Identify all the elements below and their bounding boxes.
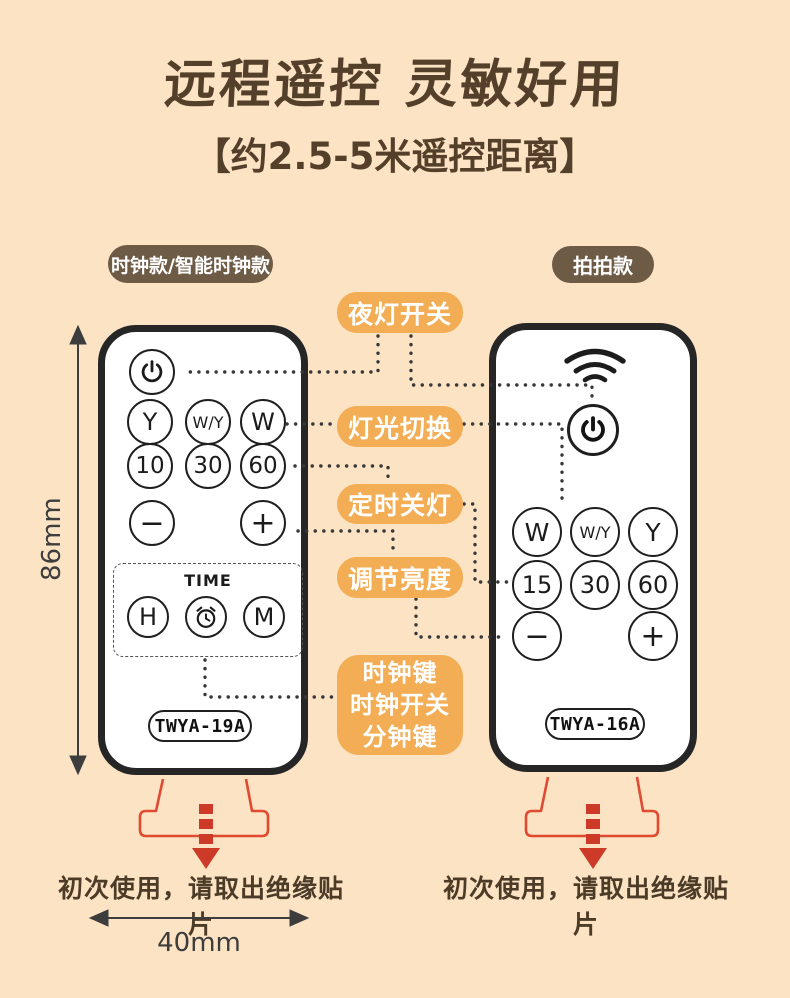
- alarm-button: [185, 596, 227, 638]
- callout-timer-off: 定时关灯: [337, 484, 463, 524]
- model-label-twya16a: TWYA-16A: [545, 708, 645, 740]
- callout-clock-key: 时钟键: [363, 657, 438, 689]
- model-badge-pat: 拍拍款: [552, 246, 654, 283]
- yellow-button: Y: [127, 399, 173, 445]
- product-infographic: 远程遥控 灵敏好用 【约2.5-5米遥控距离】 时钟款/智能时钟款 拍拍款: [0, 0, 790, 998]
- alarm-clock-icon: [193, 604, 219, 630]
- model-label-twya19a: TWYA-19A: [148, 710, 252, 742]
- power-button: [567, 404, 619, 456]
- white-button: W: [512, 507, 562, 557]
- callout-clock-keys: 时钟键 时钟开关 分钟键: [337, 655, 463, 755]
- pull-arrow-right: [579, 804, 607, 869]
- callout-adjust-brightness: 调节亮度: [337, 557, 463, 598]
- timer-60-button: 60: [628, 560, 678, 610]
- power-button: [129, 349, 175, 395]
- warm-yellow-button: W/Y: [185, 399, 231, 445]
- insulation-tab-left: [140, 779, 268, 836]
- time-section: TIME H M: [113, 563, 303, 657]
- dotted-line-brightness-left: [298, 531, 393, 555]
- yellow-button: Y: [628, 507, 678, 557]
- height-dimension-label: 86mm: [37, 501, 67, 581]
- callout-light-switching: 灯光切换: [337, 406, 463, 447]
- remote-pat-model: W W/Y Y 15 30 60 − + TWYA-16A: [489, 323, 697, 772]
- dim-minus-button: −: [129, 500, 175, 546]
- timer-30-button: 30: [570, 560, 620, 610]
- remote-clock-model: Y W/Y W 10 30 60 − + TIME H M TWYA-19A: [98, 325, 308, 775]
- callout-clock-switch: 时钟开关: [350, 689, 450, 721]
- signal-waves-icon: [563, 346, 627, 384]
- timer-60-button: 60: [240, 443, 286, 489]
- timer-10-button: 10: [127, 443, 173, 489]
- power-icon: [578, 415, 608, 445]
- dim-minus-button: −: [512, 611, 562, 661]
- dotted-line-timeroff-left: [295, 466, 388, 482]
- page-title: 远程遥控 灵敏好用: [0, 42, 790, 117]
- brighten-plus-button: +: [628, 611, 678, 661]
- power-icon: [139, 359, 165, 385]
- callout-minute-key: 分钟键: [363, 721, 438, 753]
- insulation-tab-right: [526, 777, 658, 836]
- page-subtitle: 【约2.5-5米遥控距离】: [0, 126, 790, 180]
- warm-yellow-button: W/Y: [570, 507, 620, 557]
- pull-arrow-left: [192, 804, 220, 869]
- width-dimension-label: 40mm: [139, 928, 259, 958]
- hour-button: H: [127, 596, 169, 638]
- timer-30-button: 30: [185, 443, 231, 489]
- time-section-label: TIME: [114, 571, 302, 590]
- brighten-plus-button: +: [240, 500, 286, 546]
- model-badge-clock: 时钟款/智能时钟款: [108, 245, 273, 283]
- callout-night-light-switch: 夜灯开关: [337, 292, 463, 333]
- white-button: W: [240, 399, 286, 445]
- note-right: 初次使用，请取出绝缘贴片: [440, 869, 732, 941]
- minute-button: M: [243, 596, 285, 638]
- height-dimension-arrow: [70, 326, 86, 774]
- timer-15-button: 15: [512, 560, 562, 610]
